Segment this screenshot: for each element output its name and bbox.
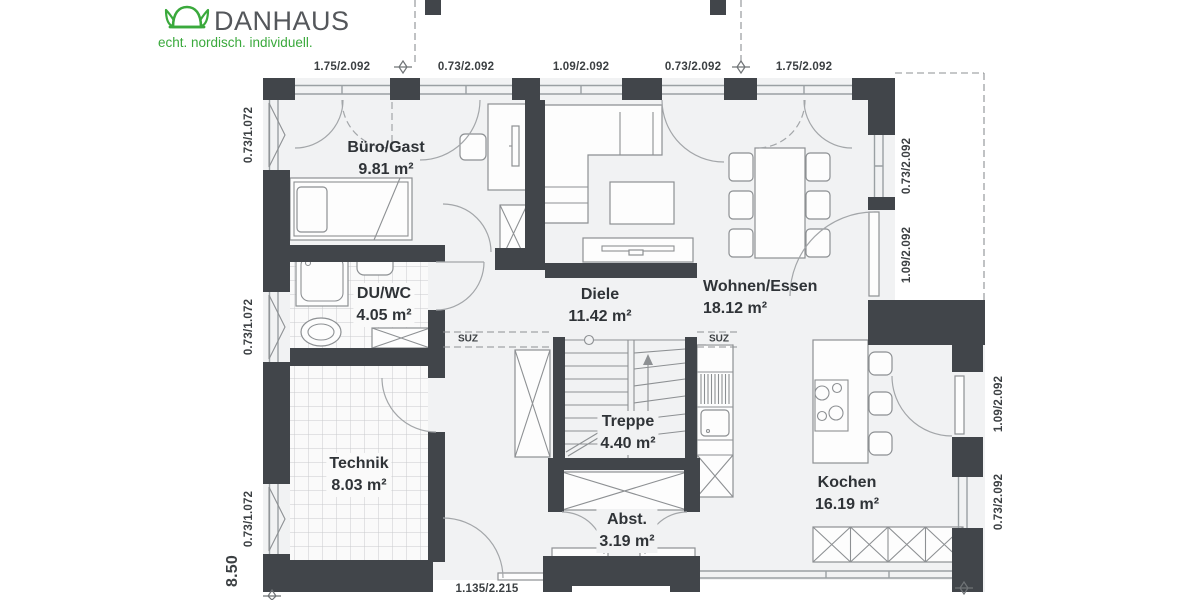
room-label-du-wc: DU/WC4.05 m² [353, 283, 414, 327]
kitchen-counter-left [697, 345, 733, 497]
dim-top-1: 1.75/2.092 [314, 61, 370, 73]
entrance-door-leaf [498, 573, 545, 580]
dim-top-2: 0.73/2.092 [438, 61, 494, 73]
room-label-diele: Diele11.42 m² [568, 284, 631, 328]
suz-label-left: SUZ [455, 334, 481, 345]
bar-stools [869, 352, 892, 455]
dim-top-5: 1.75/2.092 [776, 61, 832, 73]
abst-closet [562, 472, 687, 510]
dim-right-lower-2: 0.73/2.092 [993, 474, 1005, 530]
dim-left-1: 0.73/1.072 [243, 107, 255, 163]
porch-outline [415, 0, 741, 66]
bed [290, 178, 412, 240]
hall-wardrobe [515, 350, 550, 457]
porch-post [425, 0, 441, 15]
kitchen-counter-bottom [813, 527, 963, 562]
kitchen-door-leaf [955, 376, 964, 434]
kitchen-sink [701, 410, 729, 436]
porch-post [710, 0, 726, 15]
entrance-recess [572, 586, 670, 600]
room-label-technik: Technik8.03 m² [326, 453, 391, 497]
room-label-buero-gast: Büro/Gast9.81 m² [347, 137, 424, 181]
dim-top-3: 1.09/2.092 [553, 61, 609, 73]
kitchen-island [813, 340, 868, 463]
dim-right-upper-2: 1.09/2.092 [901, 227, 913, 283]
dim-right-lower-1: 1.09/2.092 [993, 376, 1005, 432]
dim-left-2: 0.73/1.072 [243, 299, 255, 355]
dining-table [755, 148, 805, 258]
dim-top-4: 0.73/2.092 [665, 61, 721, 73]
room-label-kochen: Kochen16.19 m² [815, 472, 879, 516]
desk-chair [460, 134, 486, 160]
desk [488, 104, 526, 190]
suz-label-right: SUZ [706, 334, 732, 345]
dim-bottom: 1.135/2.215 [456, 583, 519, 595]
dim-overall-width: 8.50 [224, 555, 242, 587]
dim-right-upper-1: 0.73/2.092 [901, 138, 913, 194]
room-label-abst: Abst.3.19 m² [596, 509, 657, 553]
terrace-door-leaf [869, 212, 879, 296]
room-label-wohnen-essen: Wohnen/Essen18.12 m² [703, 276, 817, 320]
newel-post [585, 336, 594, 345]
coffee-table [610, 182, 674, 224]
washer-cabinet [372, 328, 430, 348]
tv-sideboard [583, 238, 693, 262]
floorplan-page: DANHAUS echt. nordisch. individuell. [0, 0, 1200, 600]
room-label-treppe: Treppe4.40 m² [597, 411, 658, 455]
dim-left-3: 0.73/1.072 [243, 491, 255, 547]
toilet [301, 318, 341, 346]
